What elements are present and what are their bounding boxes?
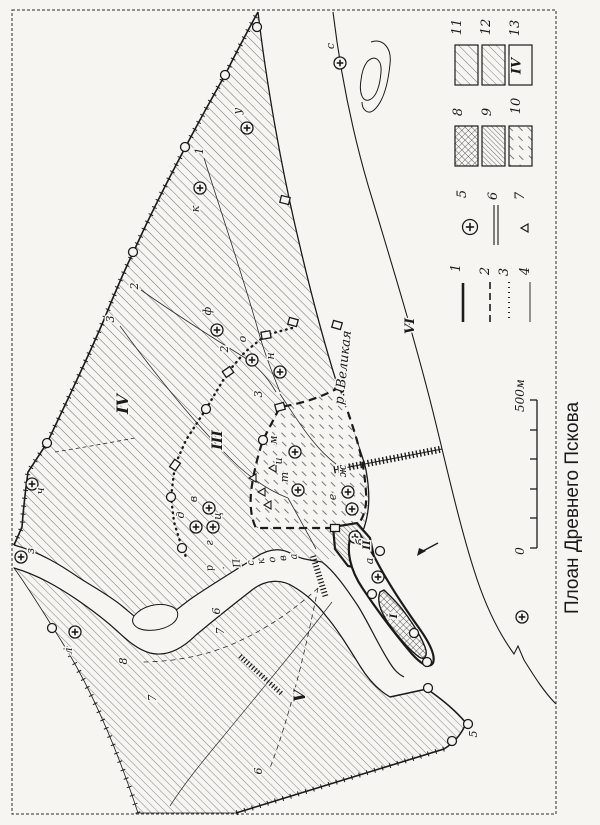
legend: 12345678910111213IV [449, 19, 533, 322]
church-letter: з [24, 548, 37, 554]
legend-swatch-12 [482, 45, 505, 85]
map-number: 6 [210, 608, 223, 615]
tower-icon [178, 544, 187, 553]
legend-item-label-11: 11 [450, 19, 465, 36]
map-letter: и [272, 457, 285, 464]
church-letter: м [267, 435, 280, 444]
tower-icon [410, 629, 419, 638]
legend-item-label-5: 5 [455, 190, 470, 198]
gate-icon [332, 320, 343, 329]
velikaya-island [360, 58, 381, 100]
legend-item-label-2: 2 [478, 267, 493, 276]
legend-swatch-11 [455, 45, 478, 85]
tower-icon [43, 439, 52, 448]
krom-inner-crosshatch [379, 590, 426, 658]
map-letter: д [174, 511, 187, 518]
map-letter: г [203, 540, 216, 546]
legend-symbol-triangle [521, 224, 528, 232]
river-label: р. Великая [332, 330, 355, 406]
map-number: 1 [193, 148, 206, 155]
district-label-II: II [362, 540, 373, 551]
church-letter: к [189, 205, 202, 212]
map-title: Плоан Древнего Пскова [562, 402, 583, 615]
church-letter: е [326, 493, 339, 500]
legend-numeral-box: IV [510, 56, 525, 75]
scale-label-zero: 0 [513, 547, 527, 555]
district-label-VI: VI [403, 317, 418, 334]
legend-swatch-9 [482, 126, 505, 166]
church-letter: ф [201, 306, 214, 315]
tower-icon [48, 624, 57, 633]
tower-icon [129, 248, 138, 257]
map-number: 3 [252, 391, 265, 398]
tower-icon [376, 547, 385, 556]
tower-icon [181, 143, 190, 152]
tower-icon [423, 658, 432, 667]
map-number: 7 [214, 628, 227, 635]
map-number: 8 [117, 658, 130, 665]
river-flow-arrow [417, 543, 438, 556]
scanned-map-page: сукфончзмтжебал 12323678765 ивдцг IIIIII… [0, 0, 600, 825]
legend-swatch-10 [509, 126, 532, 166]
church-letter: с [324, 43, 337, 49]
legend-item-label-6: 6 [486, 192, 501, 200]
legend-item-label-3: 3 [497, 268, 512, 276]
map-letter: ц [211, 512, 224, 520]
gate-icon [280, 196, 290, 205]
map-number: 2 [128, 283, 141, 291]
tower-icon [259, 436, 268, 445]
velikaya-far-bank [333, 12, 556, 704]
legend-item-label-12: 12 [479, 19, 494, 36]
legend-item-label-9: 9 [480, 108, 495, 116]
church-letter: н [264, 352, 277, 359]
church-letter: о [236, 335, 249, 342]
district-label-IV: IV [113, 392, 132, 414]
legend-item-label-7: 7 [513, 191, 528, 200]
legend-item-label-13: 13 [508, 20, 523, 37]
map-number: 6 [252, 768, 265, 775]
church-letter: л [62, 647, 75, 654]
tower-icon [464, 720, 473, 729]
legend-item-label-1: 1 [449, 264, 464, 272]
gate-icon [331, 525, 340, 532]
legend-item-label-4: 4 [518, 267, 533, 276]
district-label-V: V [290, 688, 309, 702]
city-area-hatched [14, 12, 369, 627]
pskova-bridge [313, 556, 326, 598]
tower-icon [368, 590, 377, 599]
tower-icon [424, 684, 433, 693]
map-number: 3 [104, 316, 117, 323]
church-letter: ч [34, 487, 47, 494]
legend-item-label-10: 10 [509, 98, 524, 115]
map-number: 5 [467, 731, 480, 738]
tower-icon [167, 493, 176, 502]
church-letter: т [278, 472, 291, 482]
tower-icon [253, 23, 262, 32]
map-number: 7 [146, 695, 159, 702]
tower-icon [448, 737, 457, 746]
church-letter: у [231, 107, 244, 115]
district-label-III: III [210, 430, 226, 451]
church-letter: ж [336, 464, 349, 477]
map-canvas: сукфончзмтжебал 12323678765 ивдцг IIIIII… [0, 0, 600, 825]
map-letter: в [187, 496, 200, 502]
gate-icon [261, 331, 271, 339]
scale-label-end: 500м [513, 379, 527, 412]
gate-icon [288, 317, 299, 326]
gate-icon [275, 402, 286, 411]
tower-icon [221, 71, 230, 80]
legend-item-label-8: 8 [451, 108, 466, 116]
map-number: 2 [218, 346, 231, 354]
legend-swatch-8 [455, 126, 478, 166]
scale-bar: 500м0 [513, 379, 537, 555]
tower-icon [202, 405, 211, 414]
district-label-I: I [389, 613, 400, 619]
church-letter: а [363, 558, 376, 565]
